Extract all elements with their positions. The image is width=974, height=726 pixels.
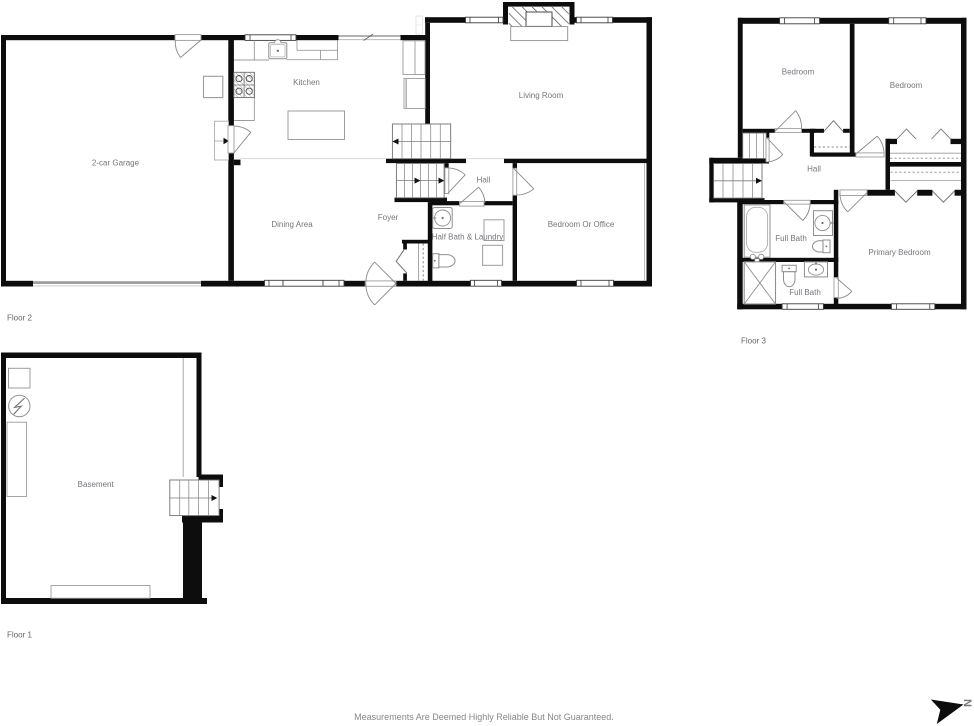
svg-text:Bedroom Or Office: Bedroom Or Office bbox=[548, 220, 615, 229]
svg-text:Basement: Basement bbox=[78, 480, 115, 489]
svg-text:2-car Garage: 2-car Garage bbox=[92, 159, 140, 168]
svg-text:Floor 1: Floor 1 bbox=[7, 631, 32, 640]
svg-text:Measurements Are Deemed Highly: Measurements Are Deemed Highly Reliable … bbox=[354, 712, 614, 722]
svg-text:N: N bbox=[961, 699, 973, 707]
svg-text:Half Bath & Laundry: Half Bath & Laundry bbox=[432, 232, 504, 241]
svg-text:Bedroom: Bedroom bbox=[890, 81, 923, 90]
svg-text:Living Room: Living Room bbox=[519, 91, 564, 100]
svg-text:Floor 3: Floor 3 bbox=[741, 337, 766, 346]
svg-text:Primary Bedroom: Primary Bedroom bbox=[868, 248, 931, 257]
svg-text:Hall: Hall bbox=[477, 176, 491, 185]
svg-text:Bedroom: Bedroom bbox=[782, 68, 815, 77]
svg-text:Hall: Hall bbox=[807, 165, 821, 174]
svg-text:Floor 2: Floor 2 bbox=[7, 314, 32, 323]
svg-text:Foyer: Foyer bbox=[378, 213, 399, 222]
svg-text:Kitchen: Kitchen bbox=[293, 78, 320, 87]
svg-text:Dining Area: Dining Area bbox=[271, 220, 313, 229]
svg-text:Full Bath: Full Bath bbox=[789, 288, 821, 297]
svg-text:Full Bath: Full Bath bbox=[775, 234, 807, 243]
